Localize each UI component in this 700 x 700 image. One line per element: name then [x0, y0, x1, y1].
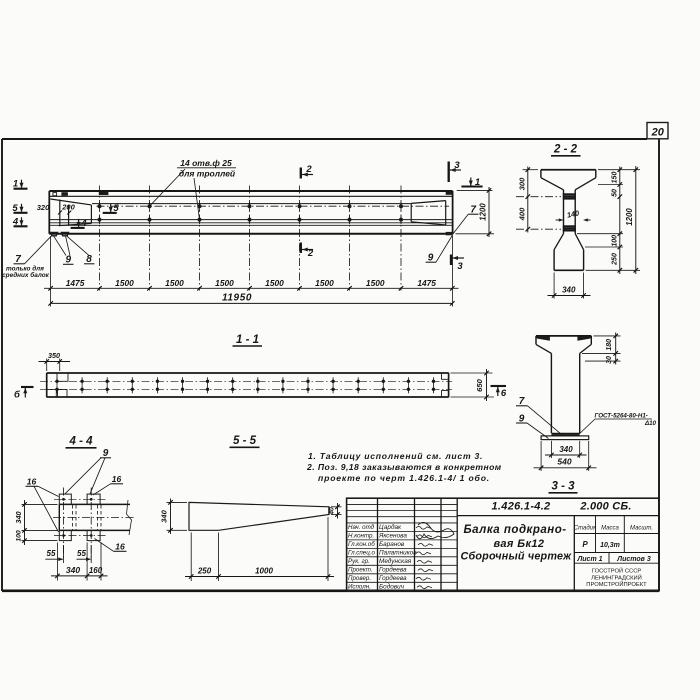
svg-text:Масса: Масса [601, 526, 619, 532]
svg-text:1: 1 [475, 177, 480, 188]
svg-text:10,3т: 10,3т [600, 542, 620, 549]
svg-text:16: 16 [112, 474, 122, 484]
svg-text:Бодович: Бодович [379, 583, 405, 591]
svg-text:5: 5 [12, 203, 18, 214]
svg-text:1.426.1-4.2: 1.426.1-4.2 [492, 501, 551, 513]
svg-text:150: 150 [611, 172, 618, 184]
svg-text:200: 200 [61, 203, 75, 212]
svg-text:1475: 1475 [66, 278, 85, 288]
svg-text:ЛЕНИНГРАДСКИЙ: ЛЕНИНГРАДСКИЙ [591, 573, 642, 581]
svg-text:1 - 1: 1 - 1 [236, 334, 259, 346]
svg-text:Исполн.: Исполн. [348, 584, 371, 591]
svg-text:55: 55 [77, 549, 86, 558]
svg-text:Δ10: Δ10 [644, 420, 657, 427]
svg-text:250: 250 [197, 566, 212, 575]
svg-text:Нач. отд: Нач. отд [348, 524, 375, 531]
svg-text:16: 16 [27, 477, 37, 487]
svg-text:Р: Р [582, 540, 588, 549]
svg-text:Палатников: Палатников [379, 550, 417, 557]
svg-text:1500: 1500 [315, 278, 334, 288]
svg-text:55: 55 [47, 549, 56, 558]
svg-text:250: 250 [611, 253, 618, 266]
svg-text:Листов 3: Листов 3 [616, 556, 651, 563]
svg-text:Гл.кон.об: Гл.кон.об [348, 541, 375, 548]
svg-text:180: 180 [606, 339, 613, 351]
svg-text:1. Таблицу исполнений см. лис: 1. Таблицу исполнений см. лист 3. [308, 451, 483, 461]
svg-text:160: 160 [89, 566, 103, 575]
svg-text:Баранов: Баранов [379, 541, 405, 548]
svg-text:14 отв.ф 25: 14 отв.ф 25 [180, 158, 232, 168]
svg-text:1475: 1475 [417, 278, 436, 288]
svg-text:50: 50 [611, 189, 618, 197]
svg-text:650: 650 [475, 378, 484, 391]
svg-text:Гордеева: Гордеева [379, 566, 407, 574]
svg-text:для троллей: для троллей [179, 169, 236, 179]
svg-text:вая Бк12: вая Бк12 [494, 538, 545, 550]
svg-text:100: 100 [16, 530, 23, 542]
svg-text:Н.контр.: Н.контр. [348, 533, 374, 540]
svg-text:340: 340 [160, 509, 169, 522]
svg-text:проекте по черт 1.426.1-4/ 1 о: проекте по черт 1.426.1-4/ 1 обо. [318, 473, 490, 483]
svg-text:ГОССТРОЙ СССР: ГОССТРОЙ СССР [592, 567, 642, 575]
svg-text:Гл.спец.о: Гл.спец.о [348, 550, 375, 557]
svg-text:100: 100 [611, 235, 618, 247]
svg-text:340: 340 [66, 565, 80, 575]
svg-text:Сборочный чертеж: Сборочный чертеж [461, 551, 573, 563]
svg-text:30: 30 [606, 356, 613, 364]
svg-text:4: 4 [80, 218, 87, 229]
svg-text:320: 320 [37, 203, 50, 212]
svg-text:400: 400 [518, 207, 527, 221]
svg-text:2.000 СБ.: 2.000 СБ. [579, 501, 631, 513]
svg-text:16: 16 [115, 542, 125, 552]
svg-text:1200: 1200 [478, 203, 487, 221]
svg-text:340: 340 [559, 445, 573, 454]
svg-text:3: 3 [457, 261, 463, 272]
svg-text:3: 3 [454, 160, 460, 171]
svg-text:6: 6 [501, 388, 507, 399]
svg-text:ГОСТ-5264-80-Н1-: ГОСТ-5264-80-Н1- [595, 412, 648, 419]
svg-text:Медунская: Медунская [379, 557, 412, 565]
svg-text:4 - 4: 4 - 4 [68, 435, 93, 447]
svg-text:ПРОМСТРОЙПРОЕКТ: ПРОМСТРОЙПРОЕКТ [586, 580, 647, 588]
svg-text:Лист 1: Лист 1 [576, 556, 602, 563]
svg-text:Гордеева: Гордеева [379, 574, 407, 582]
svg-text:средних балок: средних балок [2, 271, 50, 279]
svg-text:4: 4 [12, 216, 19, 227]
svg-text:2: 2 [307, 248, 314, 259]
svg-text:1500: 1500 [115, 278, 134, 288]
svg-text:340: 340 [562, 285, 576, 294]
svg-text:1500: 1500 [265, 278, 284, 288]
svg-text:3 - 3: 3 - 3 [551, 481, 575, 493]
svg-text:Яксенова: Яксенова [378, 533, 407, 540]
svg-text:Рук. гр.: Рук. гр. [348, 558, 370, 565]
svg-text:Балка подкрано-: Балка подкрано- [464, 524, 567, 536]
svg-text:Масшт.: Масшт. [630, 526, 653, 532]
svg-text:1500: 1500 [366, 278, 385, 288]
svg-text:1500: 1500 [165, 278, 184, 288]
svg-text:540: 540 [557, 457, 571, 467]
svg-text:1500: 1500 [215, 278, 234, 288]
svg-text:340: 340 [14, 510, 23, 523]
svg-text:40: 40 [329, 507, 336, 516]
svg-text:Провер.: Провер. [348, 575, 371, 582]
svg-text:Цардак: Цардак [379, 523, 402, 531]
svg-text:9: 9 [428, 252, 434, 263]
svg-text:1: 1 [13, 179, 18, 190]
svg-text:20: 20 [651, 126, 665, 138]
svg-text:1200: 1200 [625, 208, 634, 226]
svg-text:2: 2 [305, 164, 312, 175]
svg-text:5: 5 [113, 203, 119, 214]
svg-text:350: 350 [48, 351, 60, 360]
svg-text:Стадия: Стадия [574, 526, 597, 532]
svg-text:5 - 5: 5 - 5 [233, 435, 257, 447]
svg-text:2 - 2: 2 - 2 [553, 143, 578, 155]
svg-text:300: 300 [518, 177, 527, 190]
svg-text:Проект.: Проект. [348, 567, 373, 574]
svg-text:2. Поз. 9,18 заказываются в ко: 2. Поз. 9,18 заказываются в конкретном [306, 462, 502, 472]
svg-text:1000: 1000 [255, 566, 273, 575]
svg-text:11950: 11950 [222, 293, 252, 304]
